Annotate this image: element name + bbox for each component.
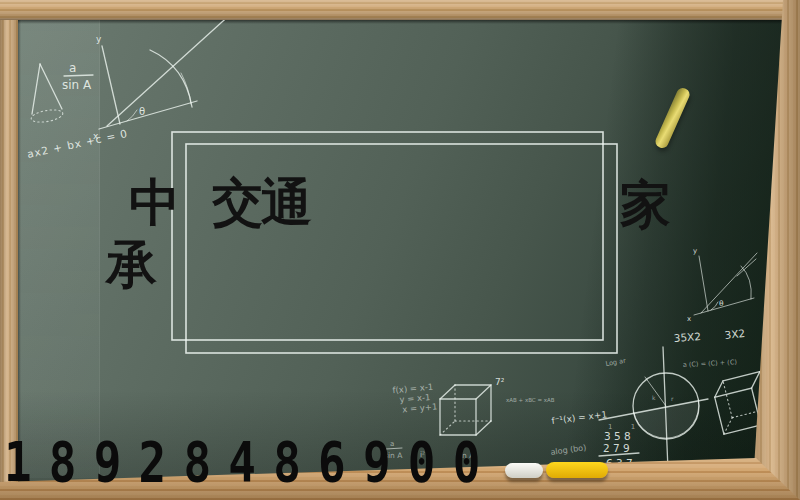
chalkboard-scene: a sin A y x θ ax2 + bx +c = 0 y x bbox=[0, 0, 800, 500]
fx-line-3: x = y+1 bbox=[402, 401, 438, 414]
matrix-equation: a (C) = (C) + (C) bbox=[683, 358, 737, 369]
tray-chalk-yellow bbox=[546, 462, 608, 478]
frac-numerator: a bbox=[69, 61, 76, 75]
circle-k-label: k bbox=[652, 394, 656, 401]
angle-diagram-left: y x θ bbox=[93, 12, 233, 141]
add-row-2: 2 7 9 bbox=[603, 442, 630, 454]
wood-frame-left bbox=[0, 0, 18, 500]
multiplication-labels: 35X2 3X2 bbox=[673, 327, 745, 344]
alog-label: alog (bo) bbox=[550, 443, 587, 457]
angle-diagram-right: y x θ bbox=[687, 247, 757, 323]
f-inverse-equation: f⁻¹(x) = x+1 bbox=[551, 409, 608, 426]
title-fragment-4: 承 bbox=[106, 239, 157, 290]
fx-equations: f(x) = x-1 y = x-1 x = y+1 bbox=[392, 381, 438, 415]
title-fragment-2: 交通 bbox=[212, 177, 310, 228]
circle-r-label: r bbox=[671, 395, 674, 402]
vector-equation: xAB + xBC = xAB bbox=[506, 397, 555, 403]
frac-denominator: sin A bbox=[62, 78, 92, 92]
addition-sum: f⁻¹(x) = x+1 1 1 3 5 8 2 7 9 6 3 7 bbox=[551, 409, 643, 469]
phone-number: 18928486900 bbox=[4, 434, 498, 490]
title-fragment-1: 中 bbox=[129, 177, 180, 228]
theta-label: θ bbox=[719, 299, 724, 308]
chalk-border-outer bbox=[172, 132, 603, 340]
seven-squared-label: 7² bbox=[495, 377, 505, 387]
tray-chalk-white bbox=[505, 463, 543, 478]
quadratic-formula: ax2 + bx +c = 0 bbox=[26, 127, 129, 160]
theta-label: θ bbox=[139, 106, 145, 117]
mul-3x2: 3X2 bbox=[724, 327, 746, 341]
cube-drawing-center: 7² bbox=[440, 377, 505, 435]
axis-label-y: y bbox=[96, 34, 102, 44]
mul-35x2: 35X2 bbox=[673, 330, 701, 344]
add-row-1: 3 5 8 bbox=[604, 430, 631, 442]
log-label: Log ar bbox=[605, 357, 627, 368]
wood-frame-top bbox=[0, 0, 800, 20]
axis-label-y: y bbox=[693, 247, 697, 255]
title-fragment-3: 家 bbox=[620, 179, 671, 230]
cone-drawing bbox=[30, 64, 63, 124]
fraction-sina: a sin A bbox=[62, 61, 93, 92]
axis-label-x: x bbox=[687, 315, 691, 323]
